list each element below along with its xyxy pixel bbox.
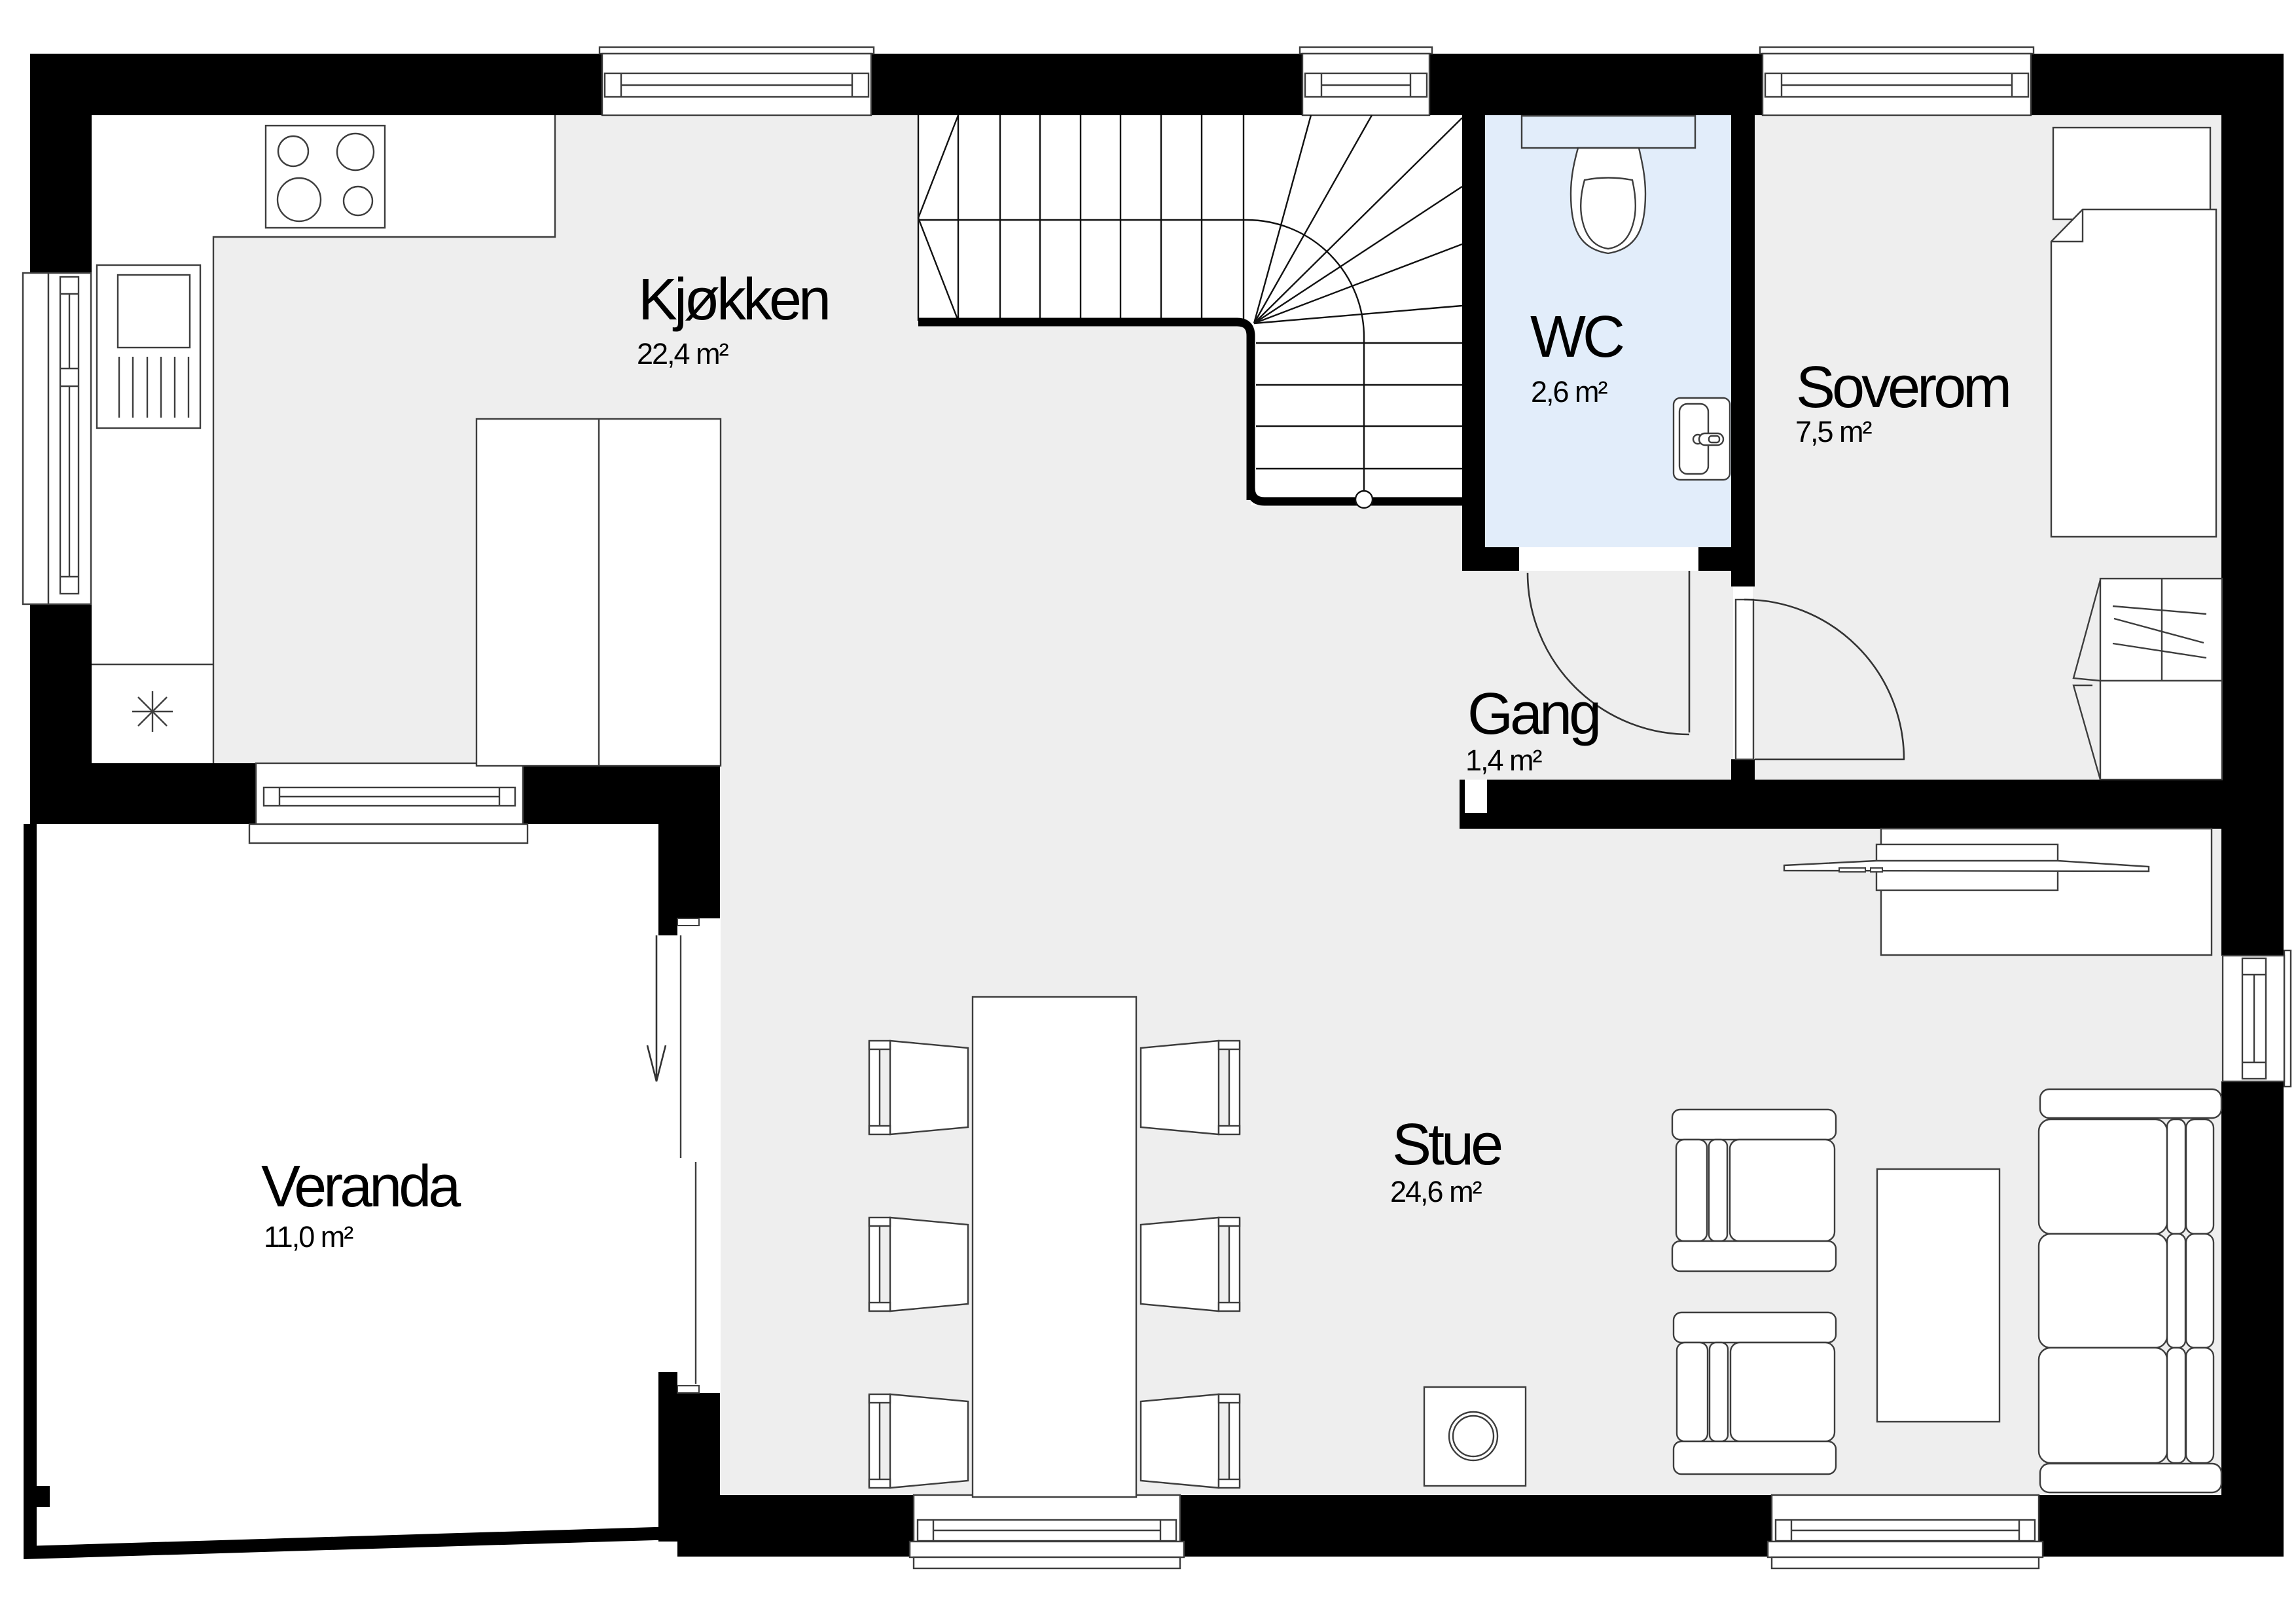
svg-text:Soverom: Soverom xyxy=(1796,355,2009,420)
svg-text:1,4 m²: 1,4 m² xyxy=(1465,744,1543,777)
svg-text:2,6 m²: 2,6 m² xyxy=(1531,375,1608,408)
svg-text:Stue: Stue xyxy=(1392,1112,1501,1178)
svg-text:24,6 m²: 24,6 m² xyxy=(1390,1175,1482,1208)
svg-text:Veranda: Veranda xyxy=(261,1154,461,1219)
svg-text:WC: WC xyxy=(1530,304,1623,370)
svg-text:Kjøkken: Kjøkken xyxy=(638,267,828,333)
svg-text:11,0 m²: 11,0 m² xyxy=(264,1220,353,1254)
svg-text:7,5 m²: 7,5 m² xyxy=(1795,415,1873,448)
svg-text:22,4 m²: 22,4 m² xyxy=(637,337,729,370)
svg-text:Gang: Gang xyxy=(1467,681,1598,747)
